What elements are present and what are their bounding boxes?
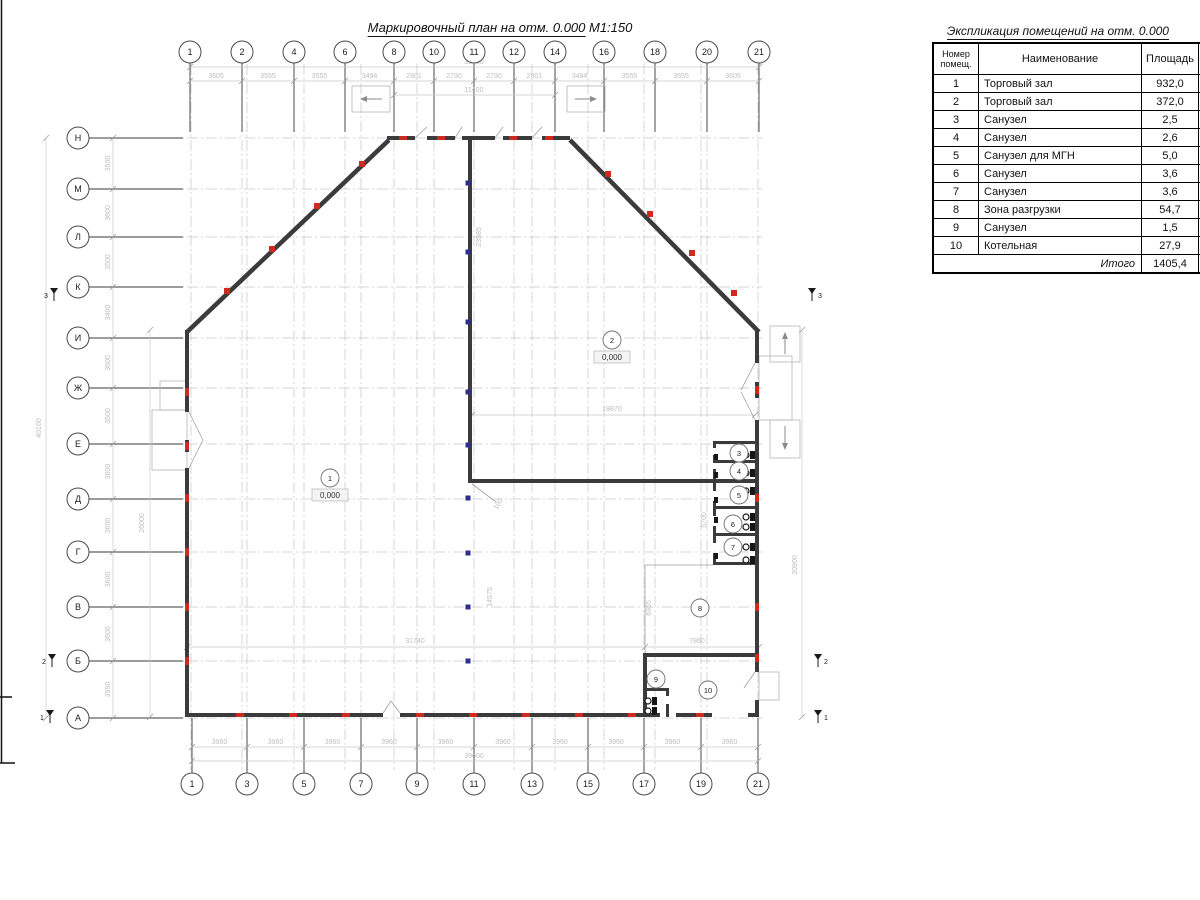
porch-outline [160, 381, 187, 410]
schedule-total-value: 1405,4 [1142, 255, 1199, 274]
column-marker-icon [466, 250, 471, 255]
door-swing [391, 701, 400, 713]
room-number: 8 [698, 604, 702, 613]
dim-text: 20900 [792, 555, 799, 575]
column-marker-icon [466, 390, 471, 395]
toilet-icon [645, 708, 651, 714]
dim-text: 3960 [438, 739, 454, 746]
axis-label: Л [75, 232, 81, 242]
sink-icon [714, 553, 718, 559]
schedule-cell-name: Санузел [979, 165, 1142, 183]
axis-label: М [74, 184, 82, 194]
axis-label: 13 [527, 779, 537, 789]
axis-label: 14 [550, 47, 560, 57]
wall [676, 713, 712, 717]
dim-text: 19870 [602, 406, 622, 413]
dim-text: 3600 [105, 572, 112, 588]
direction-arrowhead-icon [782, 332, 788, 339]
red-marker-icon [696, 713, 704, 717]
schedule-row: 7Санузел3,6 [933, 183, 1200, 201]
axis-label: Е [75, 439, 81, 449]
sink-icon [714, 454, 718, 460]
schedule-cell-num: 1 [933, 75, 979, 93]
wall [713, 501, 716, 516]
toilet-icon [750, 469, 755, 477]
dim-text: 3600 [105, 355, 112, 371]
axis-label: И [75, 333, 81, 343]
red-marker-icon [628, 713, 636, 717]
wall [713, 441, 716, 448]
red-marker-icon [509, 136, 517, 140]
axis-label: 19 [696, 779, 706, 789]
wall [666, 704, 669, 717]
axis-label: Ж [74, 383, 83, 393]
wall [755, 420, 759, 672]
toilet-icon [743, 524, 749, 530]
wall [755, 330, 759, 363]
schedule-row: 10Котельная27,9 [933, 237, 1200, 255]
red-marker-icon [731, 290, 737, 296]
dim-text: 6955 [646, 600, 653, 616]
dim-text: 3960 [552, 739, 568, 746]
section-flag-number: 2 [42, 659, 46, 666]
schedule-row: 8Зона разгрузки54,7 [933, 201, 1200, 219]
schedule-cell-num: 6 [933, 165, 979, 183]
red-marker-icon [289, 713, 297, 717]
axis-label: 18 [650, 47, 660, 57]
dim-text: 7860 [689, 638, 705, 645]
elevation-value: 0,000 [602, 353, 623, 362]
red-marker-icon [185, 494, 189, 502]
dim-text: 3500 [105, 156, 112, 172]
plan-title-scale: М1:150 [585, 20, 632, 35]
schedule-column-header: Наименование [979, 43, 1142, 75]
axis-label: 2 [239, 47, 244, 57]
dim-text: 40160 [36, 418, 43, 438]
wall [643, 688, 669, 691]
axis-label: 21 [753, 779, 763, 789]
axis-label: 21 [754, 47, 764, 57]
wall [755, 700, 759, 717]
wall [643, 653, 759, 657]
wall [713, 526, 716, 543]
section-flag-number: 1 [40, 715, 44, 722]
porch-outline [759, 356, 792, 420]
schedule-cell-area: 932,0 [1142, 75, 1199, 93]
red-marker-icon [359, 161, 365, 167]
direction-arrowhead-icon [590, 96, 597, 102]
schedule-table: Номер помещ.НаименованиеПлощадьКат. пом.… [932, 42, 1200, 274]
schedule-cell-name: Торговый зал [979, 75, 1142, 93]
schedule-cell-name: Санузел [979, 111, 1142, 129]
red-marker-icon [575, 713, 583, 717]
schedule-cell-num: 7 [933, 183, 979, 201]
dim-text: 2790 [486, 73, 502, 80]
red-marker-icon [469, 713, 477, 717]
schedule-cell-area: 5,0 [1142, 147, 1199, 165]
schedule-cell-num: 2 [933, 93, 979, 111]
axis-label: 12 [509, 47, 519, 57]
room-number: 7 [731, 543, 735, 552]
dim-text: 2801 [406, 73, 422, 80]
schedule-cell-num: 3 [933, 111, 979, 129]
section-flag-number: 2 [824, 659, 828, 666]
column-marker-icon [466, 443, 471, 448]
schedule-row: 1Торговый зал932,0 [933, 75, 1200, 93]
wall [187, 713, 383, 717]
schedule-row: 6Санузел3,6 [933, 165, 1200, 183]
dim-text: 3600 [105, 205, 112, 221]
wall [643, 653, 647, 717]
red-marker-icon [647, 211, 653, 217]
schedule-cell-name: Санузел [979, 183, 1142, 201]
schedule-cell-num: 4 [933, 129, 979, 147]
dim-text: 3500 [105, 408, 112, 424]
schedule-cell-name: Санузел для МГН [979, 147, 1142, 165]
dim-text: 31740 [405, 638, 425, 645]
toilet-icon [750, 513, 755, 521]
room-number: 5 [737, 491, 741, 500]
door-swing [495, 127, 503, 138]
room-number: 10 [704, 686, 712, 695]
column-marker-icon [466, 181, 471, 186]
section-flag-number: 3 [44, 293, 48, 300]
direction-arrowhead-icon [782, 443, 788, 450]
red-marker-icon [437, 136, 445, 140]
red-marker-icon [605, 171, 611, 177]
toilet-icon [645, 698, 651, 704]
schedule-total-row: Итого1405,4 [933, 255, 1200, 274]
schedule-row: 9Санузел1,5 [933, 219, 1200, 237]
porch-outline [152, 410, 187, 470]
dim-text: 3400 [105, 305, 112, 321]
toilet-icon [750, 543, 755, 551]
red-marker-icon [185, 442, 189, 450]
dim-text: 3605 [208, 73, 224, 80]
column-marker-icon [466, 659, 471, 664]
axis-label: К [75, 282, 81, 292]
axis-label: 8 [391, 47, 396, 57]
schedule-row: 5Санузел для МГН5,0 [933, 147, 1200, 165]
toilet-icon [750, 556, 755, 564]
schedule-cell-area: 3,6 [1142, 165, 1199, 183]
schedule-cell-name: Торговый зал [979, 93, 1142, 111]
axis-label: 1 [189, 779, 194, 789]
dim-text: 3500 [105, 254, 112, 270]
dim-text: 3555 [673, 73, 689, 80]
plan-title-text: Маркировочный план на отм. 0.000 [368, 20, 586, 37]
toilet-icon [652, 697, 657, 705]
toilet-icon [652, 707, 657, 715]
red-marker-icon [236, 713, 244, 717]
dim-text: 3494 [572, 73, 588, 80]
red-marker-icon [314, 203, 320, 209]
room-number: 6 [731, 520, 735, 529]
wall [713, 506, 759, 509]
schedule-cell-area: 2,6 [1142, 129, 1199, 147]
column-marker-icon [466, 320, 471, 325]
porch-outline [759, 672, 779, 700]
drawing-sheet: 3605355535553494280127902790280134943555… [0, 0, 1200, 900]
schedule-cell-num: 10 [933, 237, 979, 255]
dim-text: 3555 [260, 73, 276, 80]
dim-text: 3600 [105, 518, 112, 534]
schedule-cell-num: 8 [933, 201, 979, 219]
red-marker-icon [755, 494, 759, 502]
schedule-cell-area: 54,7 [1142, 201, 1199, 219]
room-number: 4 [737, 467, 741, 476]
schedule-cell-name: Санузел [979, 129, 1142, 147]
axis-label: 3 [244, 779, 249, 789]
dim-text: 26000 [139, 513, 146, 533]
axis-label: 5 [301, 779, 306, 789]
dim-text: 2801 [527, 73, 543, 80]
dim-text: 3960 [722, 739, 738, 746]
dim-text: 3960 [381, 739, 397, 746]
axis-label: 16 [599, 47, 609, 57]
wall [185, 330, 189, 412]
axis-label: Д [75, 494, 81, 504]
axis-label: 4 [291, 47, 296, 57]
dim-text: 3555 [312, 73, 328, 80]
sink-icon [714, 472, 718, 478]
door-swing [532, 127, 542, 138]
roof-wall [187, 140, 389, 332]
dim-text: 3960 [212, 739, 228, 746]
dim-text: 3960 [608, 739, 624, 746]
toilet-icon [743, 544, 749, 550]
red-marker-icon [185, 657, 189, 665]
column-marker-icon [466, 605, 471, 610]
direction-arrowhead-icon [360, 96, 367, 102]
column-marker-icon [466, 551, 471, 556]
schedule-title-text: Экспликация помещений на отм. 0.000 [947, 24, 1169, 40]
schedule-row: 3Санузел2,5 [933, 111, 1200, 129]
dim-text: 3960 [268, 739, 284, 746]
plan-title: Маркировочный план на отм. 0.000 М1:150 [368, 20, 633, 35]
schedule-title: Экспликация помещений на отм. 0.000 [947, 24, 1169, 38]
schedule-cell-area: 2,5 [1142, 111, 1199, 129]
schedule-cell-area: 27,9 [1142, 237, 1199, 255]
red-marker-icon [755, 603, 759, 611]
column-marker-icon [466, 496, 471, 501]
toilet-icon [743, 557, 749, 563]
schedule-cell-area: 372,0 [1142, 93, 1199, 111]
axis-label: Н [75, 133, 82, 143]
schedule-cell-name: Санузел [979, 219, 1142, 237]
door-swing [383, 701, 391, 713]
room-number: 2 [610, 336, 614, 345]
door-swing [455, 127, 462, 138]
wall [713, 533, 759, 536]
roof-wall [570, 140, 759, 332]
axis-label: Г [76, 547, 81, 557]
dim-text: 39600 [464, 753, 484, 760]
dim-text: 3600 [105, 626, 112, 642]
schedule-cell-name: Котельная [979, 237, 1142, 255]
axis-label: В [75, 602, 81, 612]
axis-label: 9 [414, 779, 419, 789]
axis-label: 11 [469, 47, 478, 57]
wall [462, 136, 495, 140]
dim-text: 3555 [622, 73, 638, 80]
red-marker-icon [269, 246, 275, 252]
red-marker-icon [185, 388, 189, 396]
door-swing [741, 363, 755, 390]
schedule-row: 4Санузел2,6 [933, 129, 1200, 147]
dim-text: 11400 [465, 87, 484, 94]
toilet-icon [743, 514, 749, 520]
dim-text: 3605 [725, 73, 741, 80]
red-marker-icon [416, 713, 424, 717]
red-marker-icon [224, 288, 230, 294]
axis-label: 20 [702, 47, 712, 57]
axis-label: 7 [358, 779, 363, 789]
red-marker-icon [342, 713, 350, 717]
red-marker-icon [755, 386, 759, 394]
toilet-icon [750, 451, 755, 459]
dim-text: 2790 [446, 73, 462, 80]
elevation-value: 0,000 [320, 491, 341, 500]
red-marker-icon [689, 250, 695, 256]
schedule-cell-area: 1,5 [1142, 219, 1199, 237]
axis-label: А [75, 713, 81, 723]
wall [185, 468, 189, 717]
sink-icon [714, 497, 718, 503]
red-marker-icon [755, 654, 759, 662]
axis-label: 6 [342, 47, 347, 57]
dim-text: 3600 [105, 464, 112, 480]
dim-text: 3960 [325, 739, 341, 746]
red-marker-icon [545, 136, 553, 140]
door-swing [741, 392, 755, 420]
dim-text: 3960 [665, 739, 681, 746]
schedule-column-header: Площадь [1142, 43, 1199, 75]
schedule-cell-name: Зона разгрузки [979, 201, 1142, 219]
axis-label: 17 [639, 779, 649, 789]
dim-text: 23985 [476, 227, 483, 247]
toilet-icon [750, 487, 755, 495]
red-marker-icon [185, 548, 189, 556]
section-flag-number: 1 [824, 715, 828, 722]
toilet-icon [750, 523, 755, 531]
dim-text: 3960 [495, 739, 511, 746]
dim-text: 5700 [701, 512, 708, 528]
dim-text: 100 [493, 497, 505, 511]
axis-label: 11 [469, 779, 478, 789]
schedule-total-label: Итого [933, 255, 1142, 274]
room-number: 1 [328, 474, 332, 483]
red-marker-icon [185, 603, 189, 611]
axis-label: 1 [187, 47, 192, 57]
schedule-column-header: Номер помещ. [933, 43, 979, 75]
room-number: 3 [737, 449, 741, 458]
wall [713, 483, 716, 491]
dim-text: 3494 [362, 73, 378, 80]
wall [713, 441, 759, 444]
schedule-cell-num: 5 [933, 147, 979, 165]
dim-text: 3950 [105, 682, 112, 698]
wall [666, 688, 669, 696]
schedule-row: 2Торговый зал372,0 [933, 93, 1200, 111]
section-flag-number: 3 [818, 293, 822, 300]
room-number: 9 [654, 675, 658, 684]
sink-icon [714, 517, 718, 523]
wall [503, 136, 532, 140]
axis-label: Б [75, 656, 81, 666]
schedule-body: 1Торговый зал932,02Торговый зал372,03Сан… [933, 75, 1200, 274]
dim-text: 14575 [487, 587, 494, 607]
schedule-header: Номер помещ.НаименованиеПлощадьКат. пом. [933, 43, 1200, 75]
door-swing [744, 672, 755, 688]
wall [468, 138, 472, 483]
axis-label: 15 [583, 779, 593, 789]
red-marker-icon [522, 713, 530, 717]
schedule-cell-num: 9 [933, 219, 979, 237]
axis-label: 10 [429, 47, 439, 57]
schedule-cell-area: 3,6 [1142, 183, 1199, 201]
red-marker-icon [399, 136, 407, 140]
